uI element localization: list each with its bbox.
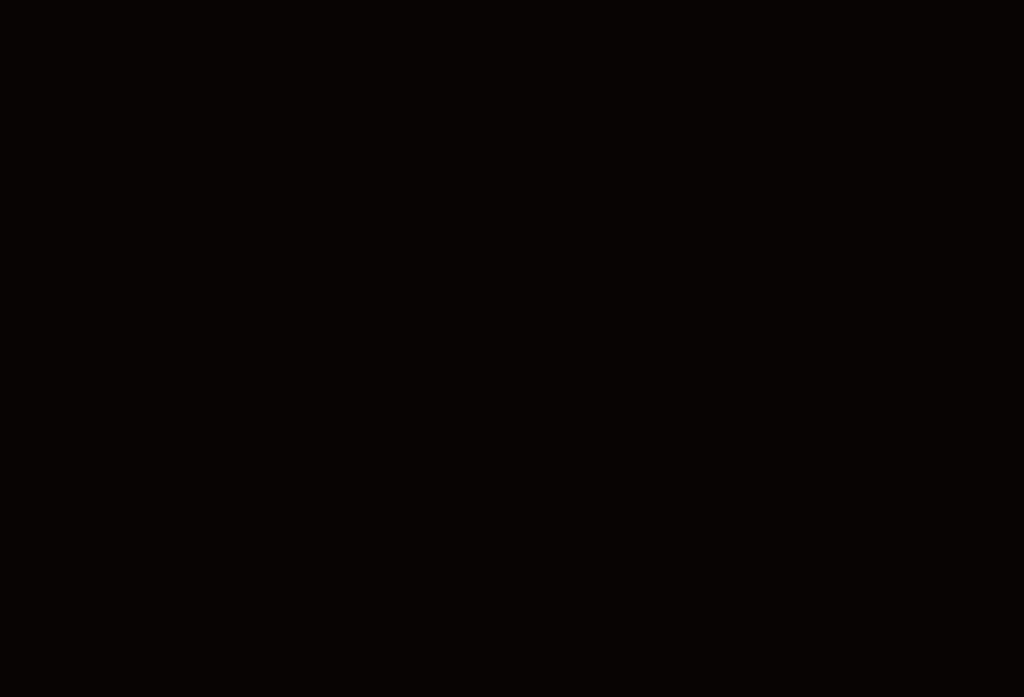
blank-black-screen (0, 0, 1024, 697)
